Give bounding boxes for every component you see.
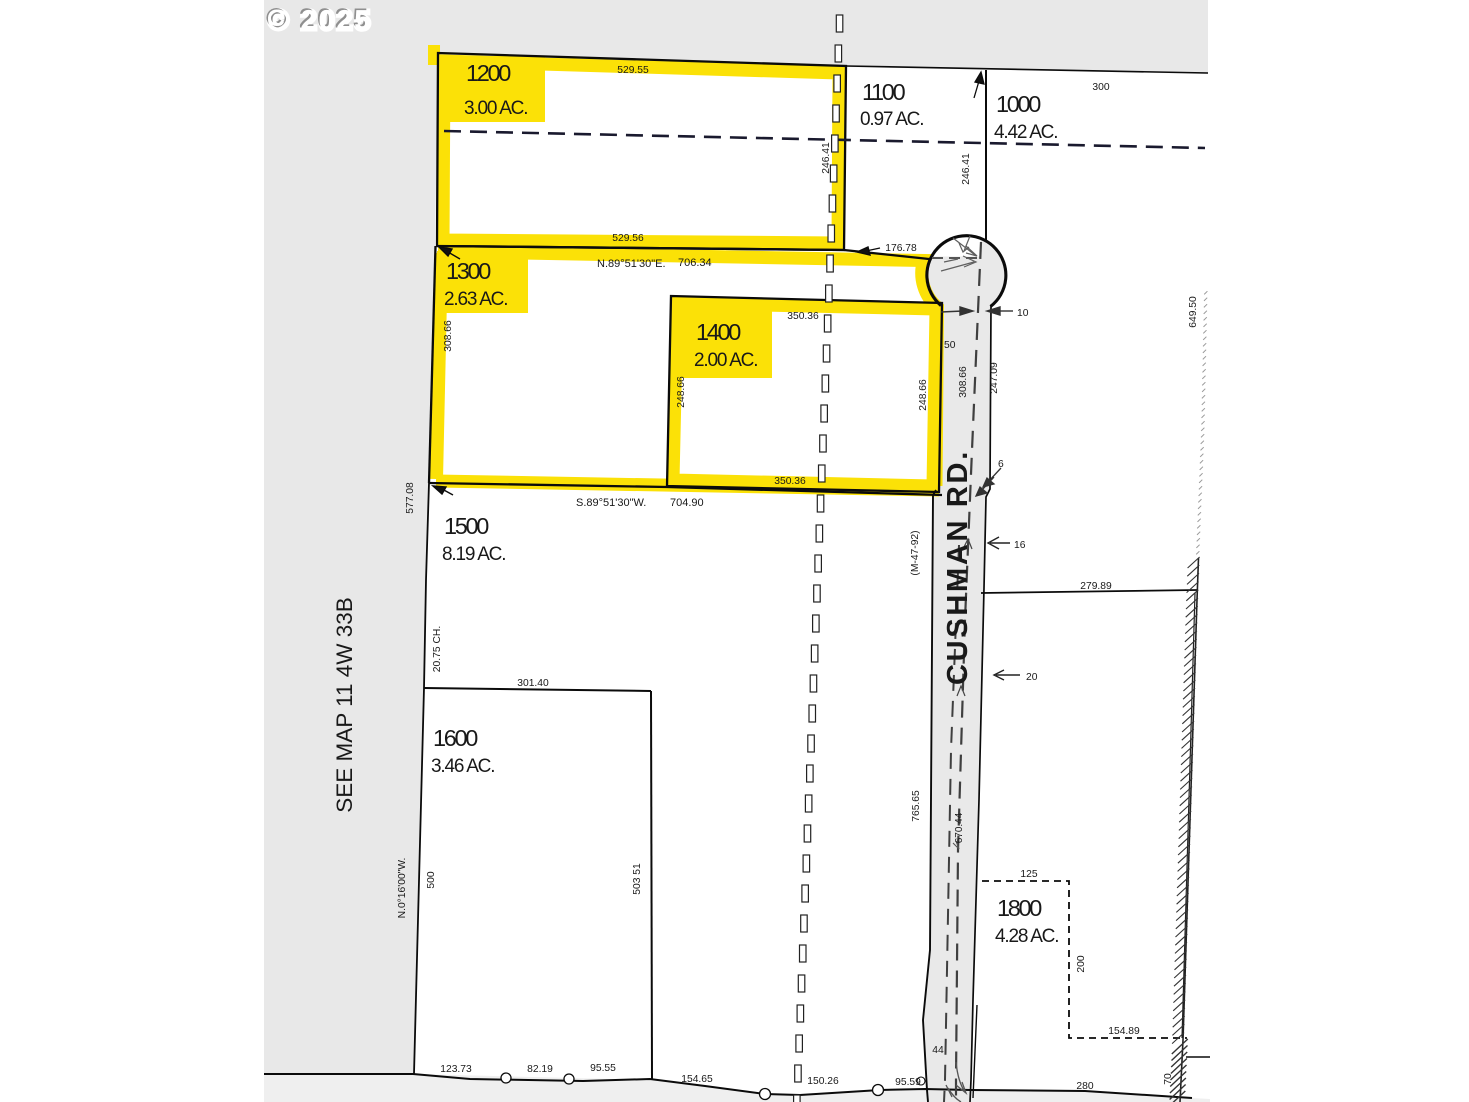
- svg-text:N.89°51'30"E.: N.89°51'30"E.: [597, 258, 666, 270]
- svg-text:529.55: 529.55: [617, 65, 649, 76]
- svg-text:82.19: 82.19: [527, 1064, 553, 1075]
- svg-text:248.66: 248.66: [918, 379, 929, 411]
- svg-text:125: 125: [1020, 869, 1037, 880]
- svg-text:308.66: 308.66: [958, 366, 969, 398]
- svg-text:649.50: 649.50: [1188, 296, 1199, 328]
- svg-text:3.00 AC.: 3.00 AC.: [464, 98, 527, 119]
- svg-text:154.65: 154.65: [681, 1074, 713, 1085]
- svg-text:246.41: 246.41: [961, 153, 972, 185]
- svg-text:577.08: 577.08: [405, 482, 416, 514]
- svg-text:350.36: 350.36: [774, 476, 806, 487]
- svg-text:SEE MAP 11 4W 33B: SEE MAP 11 4W 33B: [332, 597, 357, 813]
- svg-text:301.40: 301.40: [517, 678, 549, 689]
- svg-text:279.89: 279.89: [1080, 581, 1112, 592]
- svg-text:200: 200: [1076, 955, 1087, 972]
- svg-text:1800: 1800: [997, 895, 1042, 921]
- svg-text:350.36: 350.36: [787, 311, 819, 322]
- svg-text:123.73: 123.73: [440, 1064, 472, 1075]
- svg-text:3.46 AC.: 3.46 AC.: [431, 756, 494, 777]
- svg-text:1200: 1200: [466, 60, 511, 86]
- svg-text:246.41: 246.41: [821, 142, 832, 174]
- svg-text:300: 300: [1092, 82, 1109, 93]
- svg-text:16: 16: [1014, 540, 1026, 551]
- svg-text:(M-47-92): (M-47-92): [910, 530, 921, 575]
- svg-text:10: 10: [1017, 308, 1029, 319]
- svg-text:704.90: 704.90: [670, 497, 704, 509]
- svg-text:248.66: 248.66: [676, 376, 687, 408]
- svg-text:706.34: 706.34: [678, 257, 712, 269]
- svg-text:6: 6: [998, 459, 1004, 470]
- svg-text:1300: 1300: [446, 258, 491, 284]
- svg-text:20: 20: [1026, 672, 1038, 683]
- svg-text:308.66: 308.66: [443, 320, 454, 352]
- svg-text:154.89: 154.89: [1108, 1026, 1140, 1037]
- svg-text:© 2025: © 2025: [268, 5, 373, 36]
- svg-text:4.42 AC.: 4.42 AC.: [994, 122, 1057, 143]
- svg-text:20.75 CH.: 20.75 CH.: [432, 626, 443, 672]
- svg-text:670.44: 670.44: [954, 812, 965, 843]
- svg-text:1600: 1600: [433, 725, 478, 751]
- svg-text:0.97 AC.: 0.97 AC.: [860, 109, 923, 130]
- svg-text:8.19 AC.: 8.19 AC.: [442, 544, 505, 565]
- svg-text:CUSHMAN RD.: CUSHMAN RD.: [942, 449, 974, 685]
- svg-text:1000: 1000: [996, 91, 1041, 117]
- svg-text:50: 50: [944, 340, 956, 351]
- svg-text:280: 280: [1076, 1081, 1093, 1092]
- svg-text:N.0°16'00"W.: N.0°16'00"W.: [397, 858, 408, 919]
- svg-text:529.56: 529.56: [612, 233, 644, 244]
- svg-text:95.59: 95.59: [895, 1077, 921, 1088]
- svg-text:2.63 AC.: 2.63 AC.: [444, 289, 507, 310]
- svg-text:176.78: 176.78: [885, 243, 917, 254]
- svg-text:247.09: 247.09: [989, 362, 1000, 394]
- svg-text:500: 500: [426, 871, 437, 888]
- svg-text:2.00 AC.: 2.00 AC.: [694, 350, 757, 371]
- svg-text:1500: 1500: [444, 513, 489, 539]
- svg-text:1400: 1400: [696, 319, 741, 345]
- svg-text:150.26: 150.26: [807, 1076, 839, 1087]
- svg-text:765.65: 765.65: [911, 790, 922, 822]
- svg-text:95.55: 95.55: [590, 1063, 616, 1074]
- svg-text:4.28 AC.: 4.28 AC.: [995, 926, 1058, 947]
- svg-text:44: 44: [932, 1045, 944, 1056]
- svg-text:1100: 1100: [862, 79, 906, 105]
- svg-text:S.89°51'30"W.: S.89°51'30"W.: [576, 497, 646, 509]
- svg-text:70: 70: [1163, 1073, 1174, 1085]
- svg-text:503 51: 503 51: [632, 863, 643, 895]
